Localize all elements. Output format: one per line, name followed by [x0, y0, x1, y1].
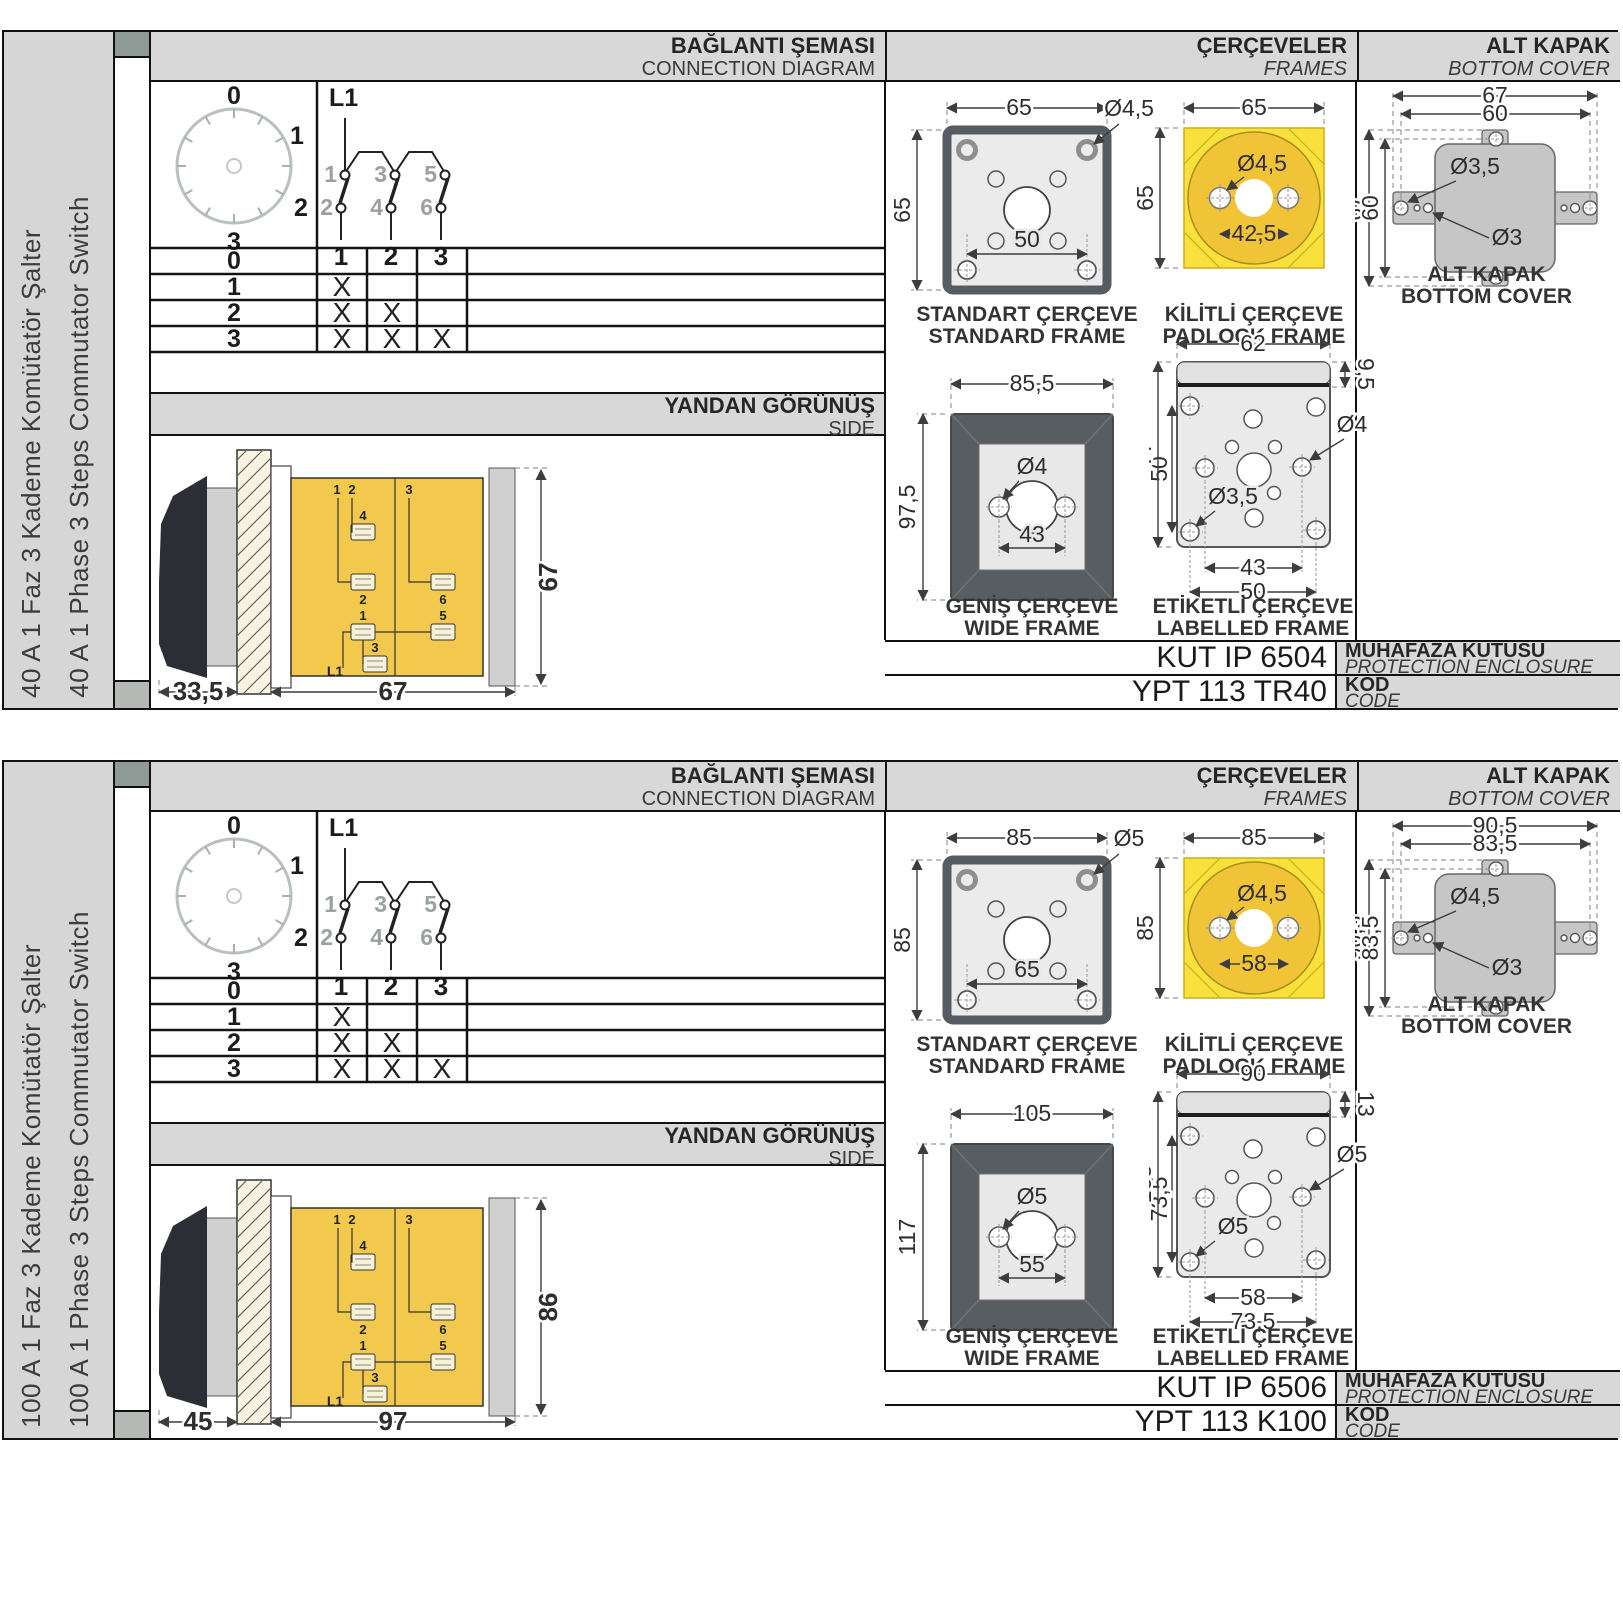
- side-view-svg: 1 2 3 4 2 6 1 5 3 L1 67: [151, 436, 885, 708]
- contact-6: 6: [420, 194, 433, 220]
- output-1: 1: [334, 241, 348, 271]
- header-turkish: YANDAN GÖRÜNÜŞ: [151, 394, 875, 418]
- padlock-frame-drawing: Ø4,5 42,5 65 65: [1136, 94, 1324, 268]
- side-view-header: YANDAN GÖRÜNÜŞ SIDE: [151, 1122, 885, 1166]
- dim-span-inner: 58: [1240, 1284, 1266, 1310]
- circuit-diagram: L1 1 3 5 2 4 6 1: [320, 84, 449, 271]
- dim-height: 65: [891, 197, 915, 223]
- terminal-label: L1: [327, 1393, 344, 1409]
- table-row-label: 1: [227, 273, 241, 301]
- dim-width: 97: [379, 1406, 408, 1436]
- header-turkish: BAĞLANTI ŞEMASI: [151, 764, 875, 788]
- wide-frame-title: GENİŞ ÇERÇEVE WIDE FRAME: [897, 1326, 1167, 1370]
- bottom-cover-header: ALT KAPAK BOTTOM COVER: [1357, 762, 1620, 812]
- dim-inner-height: 60: [1357, 195, 1383, 221]
- frame-title-english: WIDE FRAME: [897, 618, 1167, 640]
- dim-width: 62: [1240, 332, 1266, 356]
- table-row-label: 3: [227, 1055, 241, 1083]
- product-code: YPT 113 TR40: [885, 676, 1335, 708]
- enclosure-label: MUHAFAZA KUTUSU PROTECTION ENCLOSURE: [1335, 1372, 1620, 1404]
- header-english: FRAMES: [887, 58, 1347, 80]
- bottom-cover-title: ALT KAPAK BOTTOM COVER: [1357, 994, 1616, 1038]
- frames-header: ÇERÇEVELER FRAMES: [885, 32, 1357, 82]
- code-label-english: CODE: [1345, 1424, 1614, 1439]
- dim-hole-big: Ø4: [1337, 411, 1368, 437]
- frame-title-turkish: ETİKETLİ ÇERÇEVE: [1143, 1326, 1363, 1348]
- dim-inner: 50: [1014, 226, 1040, 252]
- terminal-label: 6: [439, 592, 446, 607]
- terminal-label: 2: [359, 592, 366, 607]
- rotary-dial: 0 1 2 3: [177, 82, 308, 256]
- terminal-label: 6: [439, 1322, 446, 1337]
- labelled-frame-svg: 62 9,5 50 77 Ø4 Ø3,5 43 50: [1149, 332, 1389, 632]
- table-row-label: 3: [227, 325, 241, 353]
- dim-height: 65: [1136, 185, 1158, 211]
- connection-diagram-svg: 0 1 2 3 L1 1: [151, 82, 885, 354]
- table-mark: X: [433, 323, 452, 354]
- code-row: YPT 113 K100 KOD CODE: [885, 1404, 1620, 1438]
- frame-title-turkish: GENİŞ ÇERÇEVE: [897, 1326, 1167, 1348]
- contact-3: 3: [374, 891, 387, 917]
- dim-width: 65: [1006, 94, 1032, 120]
- frame-title-english: STANDARD FRAME: [887, 326, 1167, 348]
- index-tab-top: [115, 762, 149, 788]
- dim-width: 85: [1006, 824, 1032, 850]
- dial-center-dot: [227, 889, 241, 903]
- binding-strip: [115, 32, 151, 708]
- product-section: 100 A 1 Faz 3 Kademe Komütatör Şalter 10…: [2, 760, 1618, 1440]
- table-row-label: 0: [227, 247, 241, 275]
- dim-inner: 43: [1019, 521, 1045, 547]
- frame-title-turkish: GENİŞ ÇERÇEVE: [897, 596, 1167, 618]
- dim-height: 97,5: [894, 485, 920, 530]
- terminal-label: 2: [348, 482, 355, 497]
- dim-inner-height: 83,5: [1357, 916, 1383, 961]
- labelled-frame-drawing: 62 9,5 50 77 Ø4 Ø3,5 43 50: [1149, 332, 1379, 604]
- contact-5: 5: [424, 891, 437, 917]
- dim-strip: 13: [1353, 1091, 1379, 1117]
- terminal-label: 2: [359, 1322, 366, 1337]
- table-mark: X: [333, 323, 352, 354]
- frame-title-turkish: STANDART ÇERÇEVE: [887, 1034, 1167, 1056]
- dim-hole: Ø4,5: [1237, 880, 1287, 906]
- output-1: 1: [334, 971, 348, 1001]
- frame-title-turkish: KİLİTLİ ÇERÇEVE: [1154, 1034, 1354, 1056]
- table-mark: X: [433, 1053, 452, 1084]
- dim-strip: 9,5: [1353, 358, 1379, 390]
- dim-hole-small: Ø5: [1218, 1213, 1249, 1239]
- padlock-frame-drawing: Ø4,5 58 85 85: [1136, 824, 1324, 998]
- switch-side-drawing: 1 2 3 4 2 6 1 5 3 L1 86: [159, 1166, 563, 1438]
- labelled-frame-svg: 90 13 73,5 105 Ø5 Ø5 58 73,5: [1149, 1062, 1389, 1362]
- dim-height: 105: [1149, 1165, 1156, 1203]
- labelled-frame-drawing: 90 13 73,5 105 Ø5 Ø5 58 73,5: [1149, 1062, 1379, 1334]
- frame-title-english: LABELLED FRAME: [1143, 1348, 1363, 1370]
- binding-strip: [115, 762, 151, 1438]
- dim-depth: 45: [184, 1406, 213, 1436]
- dial-center-dot: [227, 159, 241, 173]
- enclosure-label-english: PROTECTION ENCLOSURE: [1345, 660, 1614, 675]
- dim-width: 105: [1013, 1100, 1051, 1126]
- bottom-cover-header: ALT KAPAK BOTTOM COVER: [1357, 32, 1620, 82]
- terminal-label: 3: [371, 640, 378, 655]
- padlock-frame-svg: Ø4,5 58 85 85: [1136, 814, 1357, 1036]
- switch-handle: [159, 476, 207, 678]
- dim-inner-width: 83,5: [1473, 830, 1518, 856]
- header-english: CONNECTION DIAGRAM: [151, 58, 875, 80]
- terminal-label: 1: [333, 1212, 340, 1227]
- index-tab-bottom: [115, 1410, 149, 1438]
- dim-height: 67: [533, 563, 563, 592]
- connection-diagram-svg: 0 1 2 3 L1 1: [151, 812, 885, 1084]
- product-name-english: 100 A 1 Phase 3 Steps Commutator Switch: [64, 911, 95, 1428]
- header-turkish: ÇERÇEVELER: [887, 34, 1347, 58]
- dim-height: 117: [894, 1219, 920, 1256]
- terminal-label: 4: [359, 508, 367, 523]
- frames-header: ÇERÇEVELER FRAMES: [885, 762, 1357, 812]
- dim-inner: 42,5: [1232, 220, 1277, 246]
- side-view-header: YANDAN GÖRÜNÜŞ SIDE: [151, 392, 885, 436]
- dim-hole-big: Ø5: [1337, 1141, 1368, 1167]
- table-mark: X: [383, 323, 402, 354]
- enclosure-label: MUHAFAZA KUTUSU PROTECTION ENCLOSURE: [1335, 642, 1620, 674]
- dim-height: 85: [1136, 915, 1158, 941]
- table-mark: X: [333, 1053, 352, 1084]
- dim-hole: Ø5: [1017, 1183, 1048, 1209]
- cover-title-english: BOTTOM COVER: [1357, 286, 1616, 308]
- bottom-cover-drawing: 90,5 83,5 90,5 83,5 Ø4,5 Ø3: [1355, 812, 1600, 1017]
- wide-frame-title: GENİŞ ÇERÇEVE WIDE FRAME: [897, 596, 1167, 640]
- frame-title-turkish: KİLİTLİ ÇERÇEVE: [1154, 304, 1354, 326]
- product-sidebar: 100 A 1 Faz 3 Kademe Komütatör Şalter 10…: [4, 762, 115, 1438]
- dial-position-0: 0: [227, 82, 241, 110]
- connection-diagram-header: BAĞLANTI ŞEMASI CONNECTION DIAGRAM: [151, 32, 885, 82]
- terminal-label: L1: [327, 663, 344, 679]
- dim-inner: 55: [1019, 1251, 1045, 1277]
- header-turkish: ÇERÇEVELER: [887, 764, 1347, 788]
- bottom-cover-title: ALT KAPAK BOTTOM COVER: [1357, 264, 1616, 308]
- frame-title-turkish: STANDART ÇERÇEVE: [887, 304, 1167, 326]
- output-3: 3: [434, 241, 448, 271]
- standard-frame-drawing: 85 Ø5 85 65: [891, 824, 1144, 1020]
- enclosure-row: KUT IP 6504 MUHAFAZA KUTUSU PROTECTION E…: [885, 640, 1620, 674]
- dial-position-0: 0: [227, 812, 241, 840]
- standard-frame-title: STANDART ÇERÇEVE STANDARD FRAME: [887, 304, 1167, 348]
- terminal-label: 2: [348, 1212, 355, 1227]
- frame-title-english: WIDE FRAME: [897, 1348, 1167, 1370]
- datasheet-content: BAĞLANTI ŞEMASI CONNECTION DIAGRAM ÇERÇE…: [151, 762, 1620, 1438]
- terminal-label: 1: [359, 608, 366, 623]
- dim-depth: 33,5: [173, 676, 224, 706]
- dim-hole-small: Ø3: [1492, 224, 1523, 250]
- connection-diagram-header: BAĞLANTI ŞEMASI CONNECTION DIAGRAM: [151, 762, 885, 812]
- switching-table: 0 1 2 3 X X X X X X: [151, 247, 884, 354]
- column-divider: [884, 812, 886, 1370]
- dim-hole-small: Ø3: [1492, 954, 1523, 980]
- output-2: 2: [384, 971, 398, 1001]
- circuit-diagram: L1 1 3 5 2 4 6 1: [320, 814, 449, 1001]
- output-3: 3: [434, 971, 448, 1001]
- terminal-label: 1: [333, 482, 340, 497]
- code-label: KOD CODE: [1335, 1406, 1620, 1438]
- terminal-label: 3: [405, 482, 412, 497]
- phase-label: L1: [329, 84, 358, 112]
- product-sidebar: 40 A 1 Faz 3 Kademe Komütatör Şalter 40 …: [4, 32, 115, 708]
- header-turkish: ALT KAPAK: [1359, 34, 1610, 58]
- header-english: BOTTOM COVER: [1359, 58, 1610, 80]
- dim-height: 77: [1149, 441, 1156, 467]
- switch-handle: [159, 1206, 207, 1408]
- dial-position-1: 1: [290, 852, 304, 880]
- contact-4: 4: [370, 924, 383, 950]
- contact-3: 3: [374, 161, 387, 187]
- table-row-label: 0: [227, 977, 241, 1005]
- dim-hole: Ø4,5: [1237, 150, 1287, 176]
- switching-table: 0 1 2 3 X X X X X X: [151, 977, 884, 1084]
- terminal-label: 3: [405, 1212, 412, 1227]
- contact-2: 2: [320, 194, 333, 220]
- code-label: KOD CODE: [1335, 676, 1620, 708]
- column-divider: [884, 82, 886, 640]
- dim-hole-big: Ø4,5: [1450, 883, 1500, 909]
- cover-title-turkish: ALT KAPAK: [1357, 994, 1616, 1016]
- datasheet-content: BAĞLANTI ŞEMASI CONNECTION DIAGRAM ÇERÇE…: [151, 32, 1620, 708]
- switch-side-drawing: 1 2 3 4 2 6 1 5 3 L1 67: [159, 436, 563, 708]
- contact-6: 6: [420, 924, 433, 950]
- dim-height: 85: [891, 927, 915, 953]
- table-mark: X: [383, 1053, 402, 1084]
- bottom-cover-drawing: 67 60 67 60 Ø3,5 Ø3: [1355, 82, 1600, 287]
- rotary-dial: 0 1 2 3: [177, 812, 308, 986]
- dial-position-2: 2: [294, 194, 308, 222]
- end-plate: [489, 1198, 515, 1416]
- terminal-label: 1: [359, 1338, 366, 1353]
- side-view-svg: 1 2 3 4 2 6 1 5 3 L1 86: [151, 1166, 885, 1438]
- dial-position-1: 1: [290, 122, 304, 150]
- dial-position-2: 2: [294, 924, 308, 952]
- product-name-turkish: 40 A 1 Faz 3 Kademe Komütatör Şalter: [16, 229, 47, 698]
- enclosure-code: KUT IP 6504: [885, 642, 1335, 674]
- frame-title-turkish: ETİKETLİ ÇERÇEVE: [1143, 596, 1363, 618]
- product-section: 40 A 1 Faz 3 Kademe Komütatör Şalter 40 …: [2, 30, 1618, 710]
- dim-width: 67: [379, 676, 408, 706]
- dim-width: 90: [1240, 1062, 1266, 1086]
- dim-width: 85,5: [1010, 370, 1055, 396]
- terminal-label: 5: [439, 608, 446, 623]
- standard-frame-drawing: 65 Ø4,5 65 50: [891, 94, 1154, 290]
- contact-1: 1: [324, 891, 337, 917]
- frame-title-english: LABELLED FRAME: [1143, 618, 1363, 640]
- cover-title-english: BOTTOM COVER: [1357, 1016, 1616, 1038]
- terminal-label: 5: [439, 1338, 446, 1353]
- dim-inner: 65: [1014, 956, 1040, 982]
- table-row-label: 1: [227, 1003, 241, 1031]
- product-name-turkish: 100 A 1 Faz 3 Kademe Komütatör Şalter: [16, 944, 47, 1428]
- dim-width: 85: [1241, 824, 1267, 850]
- code-label-english: CODE: [1345, 694, 1614, 709]
- output-2: 2: [384, 241, 398, 271]
- dim-inner-width: 60: [1482, 100, 1508, 126]
- padlock-frame-svg: Ø4,5 42,5 65 65: [1136, 84, 1357, 306]
- contact-1: 1: [324, 161, 337, 187]
- dim-hole-big: Ø3,5: [1450, 153, 1500, 179]
- contact-2: 2: [320, 924, 333, 950]
- header-english: CONNECTION DIAGRAM: [151, 788, 875, 810]
- terminal-label: 4: [359, 1238, 367, 1253]
- end-plate: [489, 468, 515, 686]
- index-tab-bottom: [115, 680, 149, 708]
- dim-width: 65: [1241, 94, 1267, 120]
- catalog-page: 40 A 1 Faz 3 Kademe Komütatör Şalter 40 …: [0, 0, 1623, 1623]
- wide-frame-drawing: Ø5 55 105 117: [894, 1100, 1113, 1330]
- standard-frame-svg: 85 Ø5 85 65: [891, 814, 1156, 1036]
- index-tab-top: [115, 32, 149, 58]
- header-turkish: YANDAN GÖRÜNÜŞ: [151, 1124, 875, 1148]
- cover-title-turkish: ALT KAPAK: [1357, 264, 1616, 286]
- header-english: BOTTOM COVER: [1359, 788, 1610, 810]
- labelled-frame-title: ETİKETLİ ÇERÇEVE LABELLED FRAME: [1143, 596, 1363, 640]
- dim-inner: 58: [1241, 950, 1267, 976]
- dim-span-inner: 43: [1240, 554, 1266, 580]
- standard-frame-title: STANDART ÇERÇEVE STANDARD FRAME: [887, 1034, 1167, 1078]
- phase-label: L1: [329, 814, 358, 842]
- product-name-english: 40 A 1 Phase 3 Steps Commutator Switch: [64, 196, 95, 698]
- contact-5: 5: [424, 161, 437, 187]
- contact-4: 4: [370, 194, 383, 220]
- header-english: FRAMES: [887, 788, 1347, 810]
- standard-frame-svg: 65 Ø4,5 65 50: [891, 84, 1156, 306]
- table-row-label: 2: [227, 299, 241, 327]
- code-row: YPT 113 TR40 KOD CODE: [885, 674, 1620, 708]
- wide-frame-drawing: Ø4 43 85,5 97,5: [894, 370, 1113, 600]
- table-row-label: 2: [227, 1029, 241, 1057]
- enclosure-row: KUT IP 6506 MUHAFAZA KUTUSU PROTECTION E…: [885, 1370, 1620, 1404]
- terminal-label: 3: [371, 1370, 378, 1385]
- product-code: YPT 113 K100: [885, 1406, 1335, 1438]
- header-turkish: ALT KAPAK: [1359, 764, 1610, 788]
- labelled-frame-title: ETİKETLİ ÇERÇEVE LABELLED FRAME: [1143, 1326, 1363, 1370]
- dim-hole-small: Ø3,5: [1208, 483, 1258, 509]
- enclosure-label-english: PROTECTION ENCLOSURE: [1345, 1390, 1614, 1405]
- enclosure-code: KUT IP 6506: [885, 1372, 1335, 1404]
- header-turkish: BAĞLANTI ŞEMASI: [151, 34, 875, 58]
- dim-hole: Ø4: [1017, 453, 1048, 479]
- frame-title-english: STANDARD FRAME: [887, 1056, 1167, 1078]
- dim-height: 86: [533, 1293, 563, 1322]
